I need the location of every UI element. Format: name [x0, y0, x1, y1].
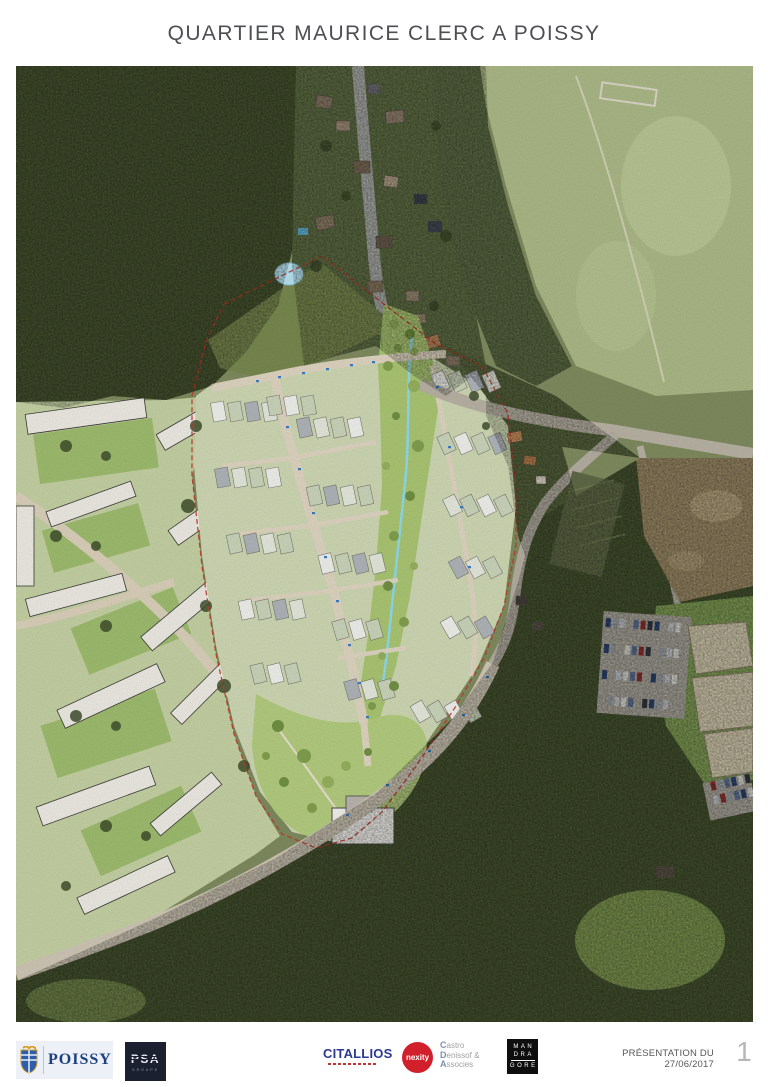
page-number: 1 [729, 1036, 759, 1068]
map-texture [16, 66, 753, 1022]
page-title: QUARTIER MAURICE CLERC A POISSY [0, 22, 768, 46]
castro-line3: Associes [440, 1060, 479, 1070]
poissy-logo: POISSY [16, 1041, 113, 1079]
aerial-masterplan-map: Cour d'entrée [16, 66, 753, 1022]
mandragore-logo: MAN DRA GORE [507, 1039, 538, 1074]
mandragore-rule [511, 1060, 535, 1061]
citallios-tagline [328, 1063, 378, 1065]
citallios-logo: CITALLIOS [323, 1046, 383, 1065]
citallios-logo-text: CITALLIOS [323, 1046, 383, 1061]
aerial-map-svg: Cour d'entrée [16, 66, 753, 1022]
mandragore-line2: DRA [511, 1051, 534, 1059]
mandragore-line3: GORE [507, 1062, 537, 1070]
presentation-slide: QUARTIER MAURICE CLERC A POISSY [0, 0, 768, 1087]
mandragore-line1: MAN [511, 1043, 534, 1051]
psa-logo-text: PSA [131, 1052, 160, 1066]
nexity-logo-text: nexity [406, 1053, 429, 1062]
poissy-logo-divider [43, 1046, 44, 1074]
psa-logo: PSA GROUPE [125, 1042, 166, 1081]
poissy-logo-text: POISSY [48, 1051, 112, 1069]
psa-logo-subtext: GROUPE [132, 1068, 159, 1072]
presentation-date: PRÉSENTATION DU 27/06/2017 [596, 1048, 714, 1070]
poissy-shield-icon [19, 1046, 39, 1074]
nexity-logo: nexity [402, 1042, 433, 1073]
castro-denissof-logo: Castro Denissof & Associes [440, 1041, 479, 1070]
